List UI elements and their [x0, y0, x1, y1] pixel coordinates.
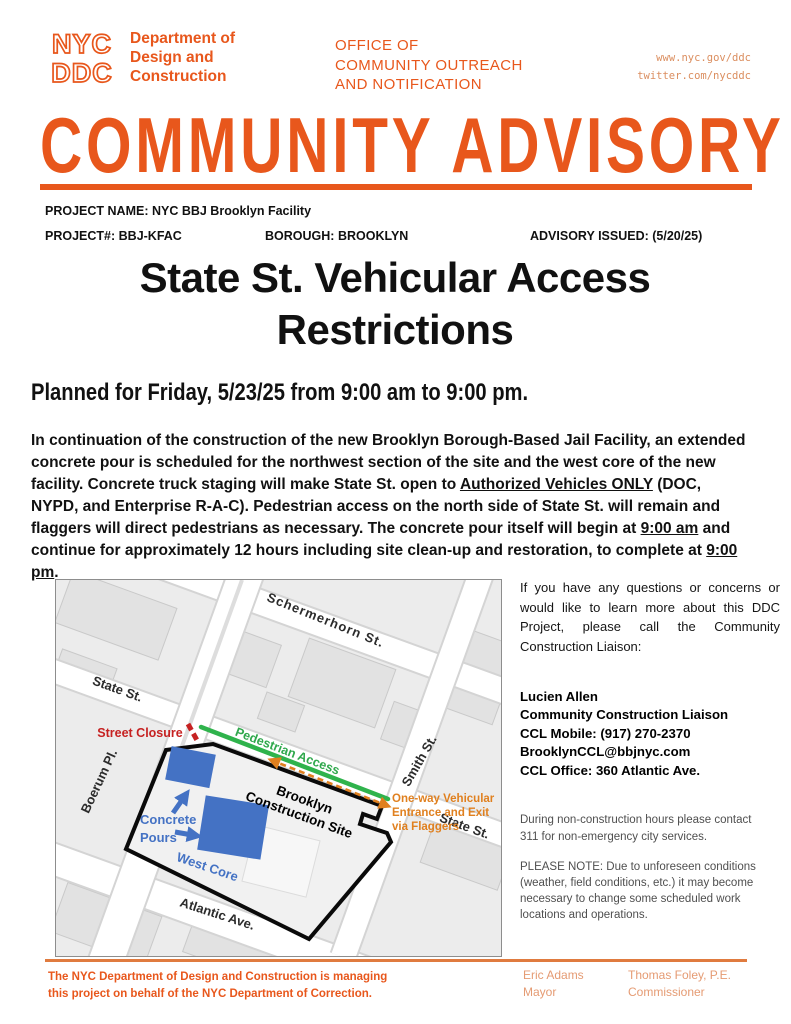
project-name-value: NYC BBJ Brooklyn Facility — [152, 204, 311, 218]
title-line2: Restrictions — [45, 304, 745, 356]
advisory-issued: ADVISORY ISSUED: (5/20/25) — [530, 229, 702, 243]
body-text-underlined: Authorized Vehicles ONLY — [460, 476, 653, 493]
sidebar-intro: If you have any questions or concerns or… — [520, 578, 780, 656]
note-please-note: PLEASE NOTE: Due to unforeseen condition… — [520, 859, 766, 923]
office-line: COMMUNITY OUTREACH — [335, 56, 523, 76]
project-name-row: PROJECT NAME: NYC BBJ Brooklyn Facility — [45, 204, 311, 218]
agency-line: Design and — [130, 49, 235, 68]
liaison-mobile: CCL Mobile: (917) 270-2370 — [520, 725, 780, 743]
liaison-email: BrooklynCCL@bbjnyc.com — [520, 743, 780, 761]
office-of-community-outreach: OFFICE OF COMMUNITY OUTREACH AND NOTIFIC… — [335, 36, 523, 95]
header: NYC DDC Department of Design and Constru… — [45, 28, 235, 90]
footer-note-line2: this project on behalf of the NYC Depart… — [48, 986, 387, 1003]
footer-note-line1: The NYC Department of Design and Constru… — [48, 969, 387, 986]
footer-mayor: Eric Adams Mayor — [523, 967, 584, 1001]
site-map-svg: Schermerhorn St. State St. Boerum Pl. Sm… — [56, 580, 501, 956]
commissioner-name: Thomas Foley, P.E. — [628, 967, 731, 984]
project-number: PROJECT#: BBJ-KFAC — [45, 229, 182, 243]
mayor-name: Eric Adams — [523, 967, 584, 984]
office-line: AND NOTIFICATION — [335, 75, 523, 95]
project-meta-row: PROJECT#: BBJ-KFAC BOROUGH: BROOKLYN ADV… — [45, 229, 755, 243]
page-title: State St. Vehicular Access Restrictions — [45, 252, 745, 355]
footer-commissioner: Thomas Foley, P.E. Commissioner — [628, 967, 731, 1001]
header-links: www.nyc.gov/ddc twitter.com/nycddc — [637, 50, 751, 86]
liaison-name: Lucien Allen — [520, 688, 780, 706]
commissioner-title: Commissioner — [628, 984, 731, 1001]
street-closure-label: Street Closure — [97, 726, 182, 740]
borough: BOROUGH: BROOKLYN — [265, 229, 408, 243]
office-line: OFFICE OF — [335, 36, 523, 56]
one-way-line2: Entrance and Exit — [392, 807, 489, 819]
agency-line: Construction — [130, 68, 235, 87]
agency-name: Department of Design and Construction — [130, 28, 235, 87]
one-way-line3: via Flaggers — [392, 821, 459, 833]
note-311: During non-construction hours please con… — [520, 812, 766, 844]
project-name-label: PROJECT NAME: — [45, 204, 148, 218]
title-line1: State St. Vehicular Access — [45, 252, 745, 304]
banner-text: COMMUNITY ADVISORY — [40, 110, 785, 182]
concrete-label-line2: Pours — [140, 830, 177, 845]
twitter-link: twitter.com/nycddc — [637, 68, 751, 86]
agency-line: Department of — [130, 30, 235, 49]
mayor-title: Mayor — [523, 984, 584, 1001]
body-text-underlined: 9:00 am — [641, 520, 699, 537]
logo-line2: DDC — [51, 58, 113, 88]
community-advisory-banner: COMMUNITY ADVISORY — [40, 110, 752, 190]
schedule-subtitle: Planned for Friday, 5/23/25 from 9:00 am… — [31, 379, 528, 407]
footer-divider — [45, 959, 747, 962]
liaison-title: Community Construction Liaison — [520, 706, 780, 724]
logo-line1: NYC — [52, 29, 112, 59]
website-link: www.nyc.gov/ddc — [637, 50, 751, 68]
site-map: Schermerhorn St. State St. Boerum Pl. Sm… — [55, 579, 502, 957]
nyc-ddc-logo: NYC DDC — [45, 28, 119, 90]
advisory-body-paragraph: In continuation of the construction of t… — [31, 430, 747, 584]
liaison-contact-block: Lucien Allen Community Construction Liai… — [520, 688, 780, 780]
footer-managing-note: The NYC Department of Design and Constru… — [48, 969, 387, 1002]
contact-sidebar: If you have any questions or concerns or… — [520, 578, 780, 937]
concrete-label-line1: Concrete — [140, 812, 196, 827]
one-way-line1: One-way Vehicular — [392, 793, 495, 805]
liaison-office: CCL Office: 360 Atlantic Ave. — [520, 762, 780, 780]
